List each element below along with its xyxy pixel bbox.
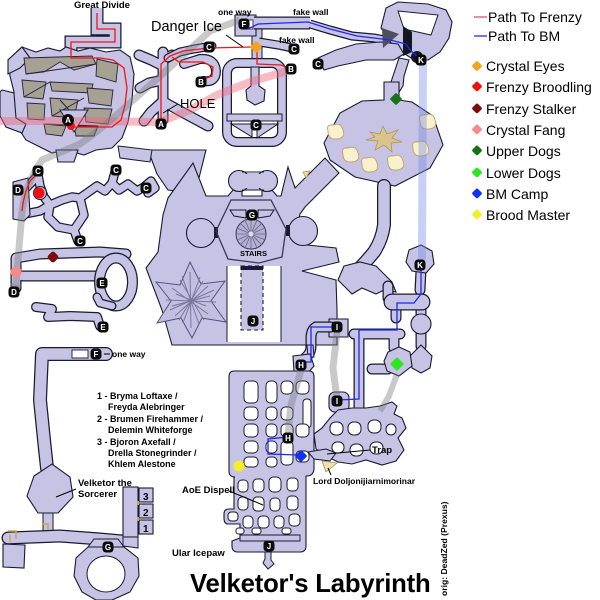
svg-text:K: K — [417, 261, 423, 270]
svg-text:H: H — [298, 361, 304, 370]
svg-text:Path To Frenzy: Path To Frenzy — [488, 9, 582, 25]
svg-text:J: J — [267, 542, 271, 551]
svg-text:K: K — [418, 56, 424, 65]
svg-text:C: C — [143, 184, 149, 193]
svg-text:Khlem Alestone: Khlem Alestone — [108, 459, 176, 469]
svg-text:STAIRS: STAIRS — [240, 249, 267, 258]
svg-text:Sorcerer: Sorcerer — [78, 489, 117, 500]
svg-text:G: G — [249, 211, 255, 220]
svg-text:J: J — [251, 317, 255, 326]
svg-text:Brood Master: Brood Master — [486, 207, 570, 223]
svg-text:BM Camp: BM Camp — [486, 186, 548, 202]
svg-text:2 - Brumen Firehammer /: 2 - Brumen Firehammer / — [97, 414, 204, 424]
svg-text:fake wall: fake wall — [279, 35, 314, 45]
svg-text:Upper Dogs: Upper Dogs — [486, 143, 561, 159]
svg-text:C: C — [113, 166, 119, 175]
svg-text:C: C — [35, 167, 41, 176]
svg-text:Frenzy Stalker: Frenzy Stalker — [486, 101, 577, 117]
svg-text:3: 3 — [143, 492, 149, 503]
svg-text:Frenzy Broodling: Frenzy Broodling — [486, 79, 592, 95]
svg-text:F: F — [94, 350, 99, 359]
svg-text:B: B — [288, 65, 294, 74]
svg-text:D: D — [11, 288, 17, 297]
svg-text:Delemin Whiteforge: Delemin Whiteforge — [108, 425, 193, 435]
svg-text:Danger Ice: Danger Ice — [151, 19, 222, 35]
svg-text:Freyda Alebringer: Freyda Alebringer — [108, 402, 185, 412]
svg-text:HOLE: HOLE — [180, 96, 216, 111]
svg-text:Velketor's Labyrinth: Velketor's Labyrinth — [190, 570, 431, 598]
svg-text:C: C — [206, 43, 212, 52]
svg-text:Lower Dogs: Lower Dogs — [486, 165, 561, 181]
svg-text:F: F — [242, 20, 247, 29]
svg-text:E: E — [100, 323, 106, 332]
svg-text:A: A — [158, 120, 164, 129]
svg-text:A: A — [65, 116, 71, 125]
svg-text:I: I — [336, 323, 338, 332]
svg-text:Path To BM: Path To BM — [488, 28, 560, 44]
svg-text:Crystal Eyes: Crystal Eyes — [486, 58, 565, 74]
svg-text:C: C — [315, 60, 321, 69]
svg-text:G: G — [105, 543, 111, 552]
svg-text:one way: one way — [112, 349, 146, 359]
svg-text:Ular Icepaw: Ular Icepaw — [172, 548, 225, 559]
svg-text:Lord Doljonijiarnimorinar: Lord Doljonijiarnimorinar — [313, 476, 416, 486]
svg-text:Drella Stonegrinder /: Drella Stonegrinder / — [108, 448, 197, 458]
svg-text:E: E — [99, 279, 105, 288]
svg-text:B: B — [198, 78, 204, 87]
svg-text:fake wall: fake wall — [293, 7, 328, 17]
svg-text:AoE Dispell: AoE Dispell — [182, 485, 235, 496]
svg-text:3 - Bjoron Axefall /: 3 - Bjoron Axefall / — [97, 437, 176, 447]
svg-text:orig: DeadZed (Prexus): orig: DeadZed (Prexus) — [439, 501, 449, 596]
svg-text:2: 2 — [143, 508, 149, 519]
svg-text:Great Divide: Great Divide — [74, 0, 130, 11]
svg-text:Crystal Fang: Crystal Fang — [486, 122, 565, 138]
svg-text:Trap: Trap — [372, 445, 392, 456]
svg-text:C: C — [77, 237, 83, 246]
svg-text:D: D — [15, 186, 21, 195]
svg-text:C: C — [291, 45, 297, 54]
svg-text:H: H — [285, 434, 291, 443]
svg-text:I: I — [336, 397, 338, 406]
svg-text:C: C — [253, 121, 259, 130]
svg-text:Velketor the: Velketor the — [78, 478, 132, 489]
svg-text:one way: one way — [218, 7, 252, 17]
svg-text:1: 1 — [143, 524, 149, 535]
svg-text:1 - Bryma Loftaxe /: 1 - Bryma Loftaxe / — [97, 391, 178, 401]
